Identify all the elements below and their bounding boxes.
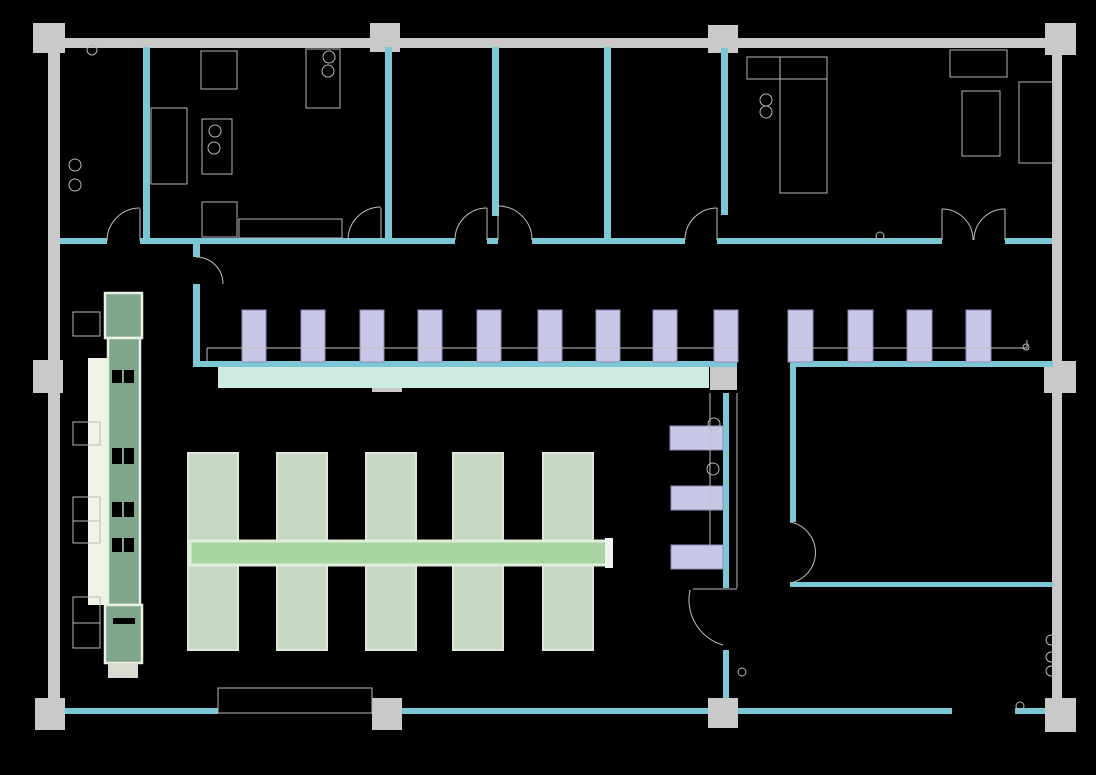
door-arc-8 xyxy=(196,257,223,284)
door-arc-1 xyxy=(107,208,140,241)
teal-wall-14 xyxy=(532,238,685,244)
door-arc-6 xyxy=(942,209,973,240)
gray-structure-15 xyxy=(1045,698,1076,732)
teal-wall-6 xyxy=(193,244,200,257)
bar-stool-13 xyxy=(966,310,991,362)
gray-structure-4 xyxy=(33,23,65,53)
bar-stool-16 xyxy=(671,545,723,569)
teal-wall-21 xyxy=(402,708,708,714)
teal-wall-5 xyxy=(721,48,728,215)
gray-structure-13 xyxy=(372,698,402,730)
floor-plan xyxy=(0,0,1096,775)
gray-structure-7 xyxy=(1045,23,1076,55)
bar-stool-6 xyxy=(538,310,562,362)
teal-wall-4 xyxy=(604,47,611,241)
buffet-slot-8 xyxy=(124,538,134,552)
door-arc-2 xyxy=(348,207,381,240)
teal-wall-19 xyxy=(790,582,1053,587)
teal-wall-10 xyxy=(790,367,796,522)
fixture-outline-16 xyxy=(962,91,1000,156)
teal-wall-7 xyxy=(193,284,200,365)
buffet-block-3 xyxy=(105,605,142,663)
teal-wall-15 xyxy=(717,238,942,244)
fixture-outline-9 xyxy=(202,119,232,174)
teal-wall-20 xyxy=(65,708,218,714)
bar-stool-11 xyxy=(848,310,873,362)
gray-structure-10 xyxy=(710,365,737,390)
teal-wall-2 xyxy=(385,47,392,241)
buffet-slot-3 xyxy=(112,448,122,464)
fixture-outline-14 xyxy=(780,79,827,193)
serving-bar-cap-1 xyxy=(605,538,613,568)
bar-stool-9 xyxy=(714,310,738,362)
bar-stool-10 xyxy=(788,310,813,362)
buffet-block-1 xyxy=(105,293,142,338)
detail-circle-4 xyxy=(209,125,221,137)
door-arc-5 xyxy=(685,208,717,240)
detail-circle-14 xyxy=(738,668,746,676)
teal-wall-3 xyxy=(492,47,499,216)
teal-wall-1 xyxy=(143,47,150,241)
fixture-outline-11 xyxy=(239,219,342,238)
serving-bar-1 xyxy=(190,541,610,565)
gray-structure-14 xyxy=(708,698,738,728)
detail-circle-13 xyxy=(707,463,719,475)
fixture-outline-6 xyxy=(73,623,100,648)
door-arc-7 xyxy=(974,209,1005,240)
detail-circle-7 xyxy=(322,65,334,77)
door-arc-9 xyxy=(689,590,723,645)
fixture-outline-18 xyxy=(218,688,372,713)
gray-structure-1 xyxy=(33,38,1075,48)
teal-wall-13 xyxy=(487,238,498,244)
teal-wall-12 xyxy=(140,238,455,244)
buffet-slot-4 xyxy=(124,448,134,464)
buffet-slot-5 xyxy=(112,502,122,517)
buffet-slot-1 xyxy=(112,370,122,383)
detail-circle-5 xyxy=(208,142,220,154)
buffet-cap-1 xyxy=(108,663,138,678)
bar-stool-3 xyxy=(360,310,384,362)
bar-stool-12 xyxy=(907,310,932,362)
door-arc-3 xyxy=(455,208,487,240)
door-arc-10 xyxy=(790,522,815,583)
fixture-outline-1 xyxy=(73,312,100,336)
bar-stool-4 xyxy=(418,310,442,362)
teal-wall-16 xyxy=(1005,238,1052,244)
gray-structure-12 xyxy=(35,698,65,730)
bar-stool-8 xyxy=(653,310,677,362)
gray-structure-8 xyxy=(33,360,63,393)
fixture-outline-8 xyxy=(151,108,187,184)
teal-wall-9 xyxy=(723,650,729,698)
door-arc-4 xyxy=(498,206,532,240)
buffet-slot-2 xyxy=(124,370,134,383)
teal-wall-11 xyxy=(60,238,107,244)
detail-circle-11 xyxy=(1023,344,1029,350)
floor-plan-canvas xyxy=(0,0,1096,775)
fixture-outline-13 xyxy=(747,57,827,79)
teal-wall-8 xyxy=(723,393,729,588)
teal-wall-22 xyxy=(738,708,952,714)
teal-wall-23 xyxy=(1015,708,1045,714)
bar-stool-1 xyxy=(242,310,266,362)
bar-stool-2 xyxy=(301,310,325,362)
fixture-outline-17 xyxy=(1019,82,1053,163)
detail-circle-8 xyxy=(760,94,772,106)
service-counter-1 xyxy=(218,367,709,388)
bar-stool-15 xyxy=(671,486,723,510)
buffet-slot-7 xyxy=(112,538,122,552)
fixture-outline-7 xyxy=(201,51,237,89)
buffet-strip-1 xyxy=(88,358,107,605)
detail-circle-3 xyxy=(69,179,81,191)
buffet-slot-6 xyxy=(124,502,134,517)
bar-stool-7 xyxy=(596,310,620,362)
fixture-outline-15 xyxy=(950,50,1007,77)
fixture-outline-10 xyxy=(202,202,237,237)
buffet-slot-9 xyxy=(113,618,135,624)
detail-circle-9 xyxy=(760,106,772,118)
bar-stool-5 xyxy=(477,310,501,362)
detail-circle-6 xyxy=(323,51,335,63)
detail-circle-2 xyxy=(69,159,81,171)
